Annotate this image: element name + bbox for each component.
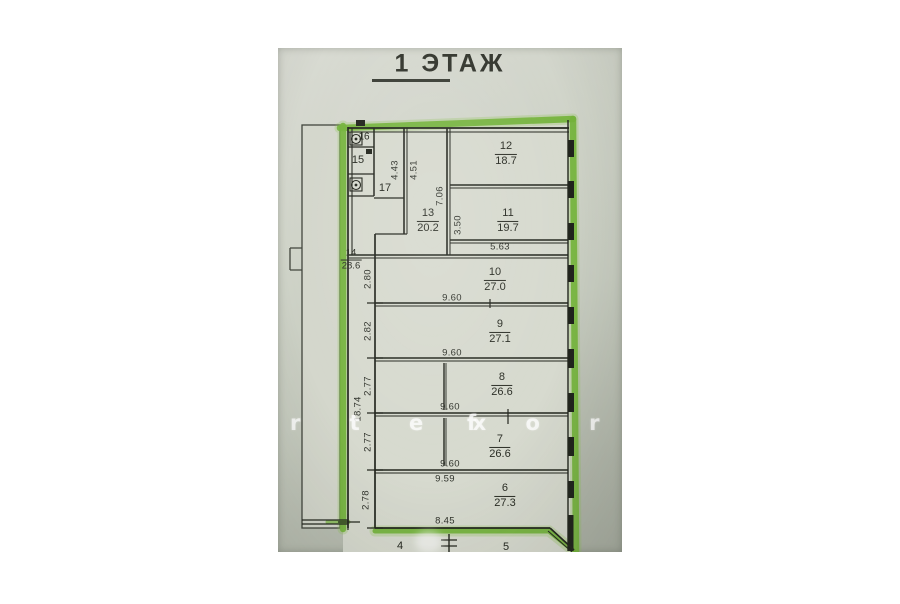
room-label-12: 12 18.7	[495, 141, 517, 167]
page-title: 1 ЭТАЖ	[395, 50, 506, 79]
room-number: 8	[491, 372, 512, 386]
room-number: 10	[484, 267, 506, 281]
dimension-label: 8.45	[435, 516, 455, 527]
room-number: 7	[489, 434, 510, 448]
room-area: 18.7	[495, 155, 517, 168]
room-label-11: 11 19.7	[497, 208, 518, 234]
room-area: 20.2	[417, 222, 439, 235]
room-number: 14	[341, 249, 362, 261]
dimension-label: 2.77	[363, 376, 374, 396]
room-number: 13	[417, 208, 439, 222]
room-label-9: 9 27.1	[489, 319, 510, 345]
room-area: 27.0	[484, 281, 506, 294]
room-label-5: 5	[503, 541, 509, 552]
room-number: 6	[494, 483, 515, 497]
room-label-10: 10 27.0	[484, 267, 506, 293]
dimension-label: 2.78	[361, 490, 372, 510]
plan-content: 1 ЭТАЖ 16 15 17 4 5 12 18.7 11 19.7 13 2…	[278, 48, 622, 552]
room-number: 9	[489, 319, 510, 333]
dimension-label: 4.51	[409, 160, 420, 180]
room-area: 19.7	[497, 222, 518, 235]
room-label-16: 16	[358, 132, 369, 143]
watermark-text-right: f o r t e	[467, 411, 622, 435]
room-label-7: 7 26.6	[489, 434, 510, 460]
room-label-8: 8 26.6	[491, 372, 512, 398]
room-number: 12	[495, 141, 517, 155]
dimension-label: 9.60	[442, 348, 462, 359]
room-label-17: 17	[379, 182, 391, 194]
light-spot	[415, 531, 442, 552]
room-area: 26.6	[489, 448, 510, 461]
room-area: 27.1	[489, 333, 510, 346]
dimension-label: 2.82	[363, 321, 374, 341]
room-label-4: 4	[397, 540, 403, 552]
dimension-label: 2.80	[363, 269, 374, 289]
dimension-label: 7.06	[435, 186, 446, 206]
room-area: 27.3	[494, 497, 515, 510]
left-strip	[290, 125, 340, 528]
room-area: 26.6	[491, 386, 512, 399]
room-label-6: 6 27.3	[494, 483, 515, 509]
room-area: 28.6	[341, 261, 362, 272]
dimension-label: 2.77	[363, 432, 374, 452]
dimension-label: 9.59	[435, 474, 455, 485]
room-label-13: 13 20.2	[417, 208, 439, 234]
room-label-15: 15	[352, 154, 364, 166]
dimension-label: 9.60	[442, 293, 462, 304]
floorplan-photo: 1 ЭТАЖ 16 15 17 4 5 12 18.7 11 19.7 13 2…	[278, 48, 622, 552]
dimension-label: 5.63	[490, 242, 510, 253]
dimension-label: 4.43	[390, 160, 401, 180]
room-number: 11	[497, 208, 518, 222]
dimension-label: 3.50	[453, 215, 464, 235]
dimension-label: 9.60	[440, 459, 460, 470]
room-label-14: 14 28.6	[341, 249, 362, 272]
title-underline	[372, 79, 450, 82]
